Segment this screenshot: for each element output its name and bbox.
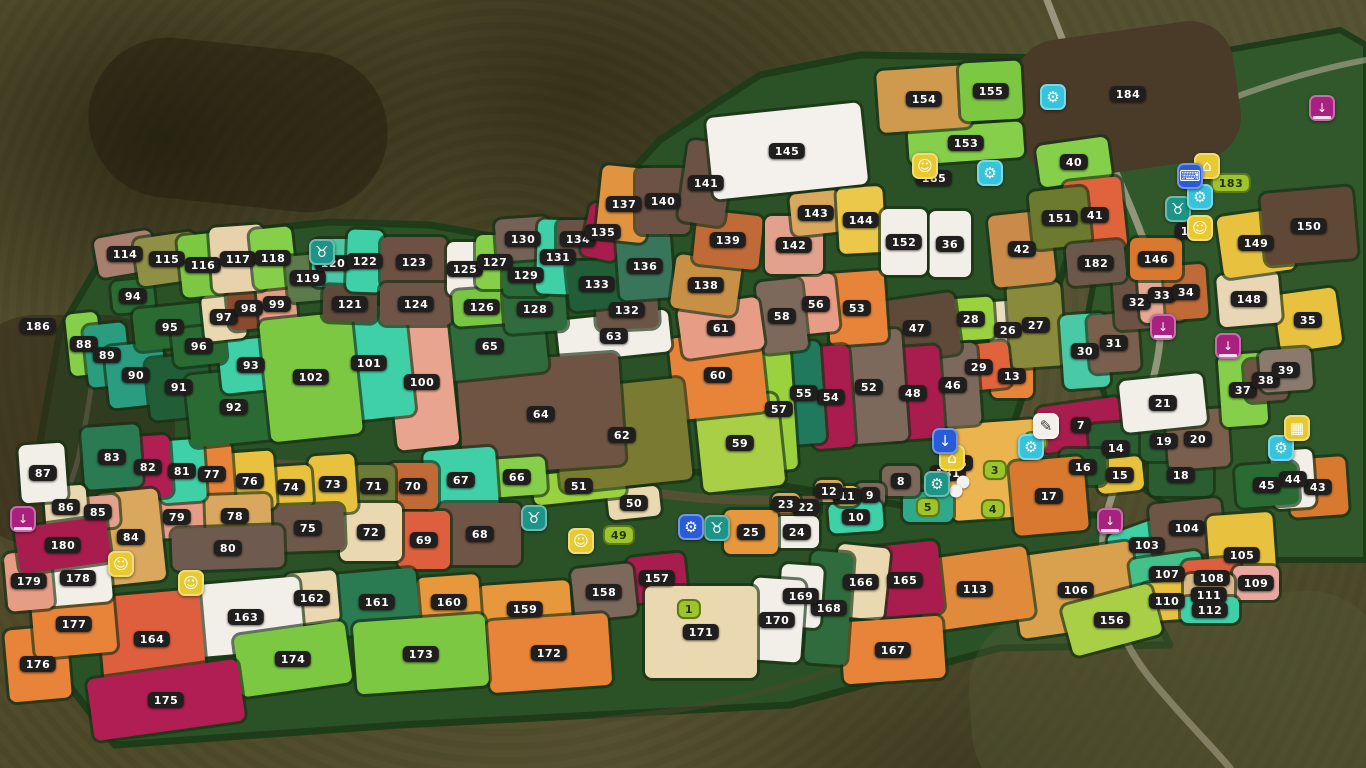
field-label-13[interactable]: 13: [998, 368, 1026, 384]
field-label-25[interactable]: 25: [737, 524, 765, 540]
field-label-24[interactable]: 24: [783, 524, 811, 540]
field-label-42[interactable]: 42: [1008, 241, 1036, 257]
field-label-92[interactable]: 92: [220, 399, 248, 415]
field-label-58[interactable]: 58: [768, 308, 796, 324]
field-label-126[interactable]: 126: [464, 299, 500, 315]
cow-shed-icon-glyph: ♉: [1171, 200, 1184, 218]
field-label-101[interactable]: 101: [351, 355, 387, 371]
field-label-183[interactable]: 183: [1213, 175, 1249, 191]
field-label-85[interactable]: 85: [84, 504, 112, 520]
field-label-103[interactable]: 103: [1129, 537, 1165, 553]
sell-point-icon-glyph: ↓: [1317, 101, 1327, 115]
field-label-175[interactable]: 175: [148, 692, 184, 708]
field-label-36[interactable]: 36: [936, 236, 964, 252]
marker-dot[interactable]: [950, 485, 963, 498]
field-label-87[interactable]: 87: [29, 465, 57, 481]
field-label-180[interactable]: 180: [45, 537, 81, 553]
cow-shed-icon-glyph: ♉: [710, 519, 723, 537]
production-icon-glyph: ⚙: [1274, 439, 1287, 457]
production-icon-glyph: ⚙: [983, 164, 996, 182]
field-label-141[interactable]: 141: [688, 175, 724, 191]
field-label-90[interactable]: 90: [122, 367, 150, 383]
cow-shed-icon-glyph: ♉: [527, 509, 540, 527]
field-label-19[interactable]: 19: [1150, 433, 1178, 449]
field-label-184[interactable]: 184: [1110, 86, 1146, 102]
production-icon-glyph: ⚙: [1193, 188, 1206, 206]
field-label-61[interactable]: 61: [707, 320, 735, 336]
field-label-113[interactable]: 113: [957, 581, 993, 597]
field-label-150[interactable]: 150: [1291, 218, 1327, 234]
field-label-15[interactable]: 15: [1106, 467, 1134, 483]
sell-point-icon-glyph: ↓: [1223, 339, 1233, 353]
field-label-44[interactable]: 44: [1279, 471, 1307, 487]
field-label-3[interactable]: 3: [985, 462, 1005, 478]
field-label-71[interactable]: 71: [360, 478, 388, 494]
field-label-82[interactable]: 82: [134, 459, 162, 475]
field-label-65[interactable]: 65: [476, 338, 504, 354]
field-label-161[interactable]: 161: [359, 594, 395, 610]
sales-terminal-icon-glyph: ⌨: [1179, 167, 1201, 185]
field-label-114[interactable]: 114: [107, 246, 143, 262]
field-label-115[interactable]: 115: [149, 251, 185, 267]
field-label-54[interactable]: 54: [817, 389, 845, 405]
field-label-50[interactable]: 50: [620, 495, 648, 511]
field-label-108[interactable]: 108: [1194, 570, 1230, 586]
field-label-62[interactable]: 62: [608, 427, 636, 443]
field-label-142[interactable]: 142: [776, 237, 812, 253]
field-label-76[interactable]: 76: [236, 473, 264, 489]
field-label-149[interactable]: 149: [1238, 235, 1274, 251]
field-label-49[interactable]: 49: [605, 527, 633, 543]
field-label-182[interactable]: 182: [1078, 255, 1114, 271]
sell-point-icon[interactable]: ↓: [1150, 314, 1176, 340]
sell-point-icon-glyph: ↓: [18, 512, 28, 526]
field-label-31[interactable]: 31: [1100, 335, 1128, 351]
field-map: 1234567891011121314151617181920212223242…: [0, 0, 1366, 768]
field-label-160[interactable]: 160: [431, 594, 467, 610]
field-label-176[interactable]: 176: [20, 656, 56, 672]
field-label-12[interactable]: 12: [815, 483, 843, 499]
field-label-152[interactable]: 152: [886, 234, 922, 250]
icon-caption-bar: [1219, 354, 1237, 357]
field-label-18[interactable]: 18: [1167, 467, 1195, 483]
worker-icon[interactable]: ☺: [568, 528, 594, 554]
field-label-123[interactable]: 123: [396, 254, 432, 270]
sell-point-icon[interactable]: ↓: [1097, 508, 1123, 534]
field-label-77[interactable]: 77: [198, 466, 226, 482]
field-label-20[interactable]: 20: [1184, 431, 1212, 447]
field-label-98[interactable]: 98: [235, 300, 263, 316]
field-label-102[interactable]: 102: [293, 369, 329, 385]
icon-caption-bar: [14, 527, 32, 530]
delivery-point-icon[interactable]: ↓: [932, 428, 958, 454]
field-label-5[interactable]: 5: [918, 499, 938, 515]
worker-icon-glyph: ☺: [113, 555, 129, 573]
sales-terminal-icon[interactable]: ⌨: [1177, 163, 1203, 189]
production-icon-glyph: ⚙: [1024, 438, 1037, 456]
field-label-136[interactable]: 136: [627, 258, 663, 274]
field-label-79[interactable]: 79: [163, 509, 191, 525]
field-label-86[interactable]: 86: [52, 499, 80, 515]
field-label-100[interactable]: 100: [404, 374, 440, 390]
field-label-93[interactable]: 93: [237, 357, 265, 373]
field-label-133[interactable]: 133: [579, 276, 615, 292]
field-label-56[interactable]: 56: [802, 296, 830, 312]
sell-point-icon[interactable]: ↓: [10, 506, 36, 532]
field-label-51[interactable]: 51: [565, 478, 593, 494]
field-label-121[interactable]: 121: [332, 296, 368, 312]
field-label-41[interactable]: 41: [1081, 207, 1109, 223]
field-label-127[interactable]: 127: [477, 254, 513, 270]
sell-point-icon[interactable]: ↓: [1215, 333, 1241, 359]
shop-icon[interactable]: ▦: [1284, 415, 1310, 441]
vehicle-shed-icon-glyph: ⌂: [1202, 157, 1212, 175]
field-label-72[interactable]: 72: [357, 524, 385, 540]
field-label-163[interactable]: 163: [228, 609, 264, 625]
field-label-83[interactable]: 83: [98, 449, 126, 465]
worker-icon-glyph: ☺: [917, 157, 933, 175]
field-label-177[interactable]: 177: [56, 616, 92, 632]
field-label-59[interactable]: 59: [726, 435, 754, 451]
field-label-111[interactable]: 111: [1191, 587, 1227, 603]
field-label-156[interactable]: 156: [1094, 612, 1130, 628]
field-label-119[interactable]: 119: [290, 270, 326, 286]
field-label-91[interactable]: 91: [165, 379, 193, 395]
field-label-132[interactable]: 132: [609, 302, 645, 318]
field-label-153[interactable]: 153: [948, 135, 984, 151]
field-label-75[interactable]: 75: [294, 520, 322, 536]
cow-shed-icon-glyph: ♉: [315, 243, 328, 261]
field-label-46[interactable]: 46: [939, 377, 967, 393]
field-label-173[interactable]: 173: [403, 646, 439, 662]
field-label-68[interactable]: 68: [466, 526, 494, 542]
field-label-4[interactable]: 4: [983, 501, 1003, 517]
field-label-10[interactable]: 10: [842, 509, 870, 525]
worker-icon[interactable]: ☺: [912, 153, 938, 179]
document-icon[interactable]: ✎: [1033, 413, 1059, 439]
field-label-70[interactable]: 70: [399, 478, 427, 494]
delivery-point-icon-glyph: ↓: [939, 432, 952, 450]
production-icon-glyph: ⚙: [1046, 88, 1059, 106]
field-label-80[interactable]: 80: [214, 540, 242, 556]
field-label-7[interactable]: 7: [1071, 417, 1091, 433]
field-label-138[interactable]: 138: [688, 277, 724, 293]
worker-icon[interactable]: ☺: [178, 570, 204, 596]
field-label-78[interactable]: 78: [221, 508, 249, 524]
field-label-45[interactable]: 45: [1253, 477, 1281, 493]
field-label-43[interactable]: 43: [1304, 479, 1332, 495]
field-label-174[interactable]: 174: [275, 651, 311, 667]
field-label-21[interactable]: 21: [1149, 395, 1177, 411]
field-label-8[interactable]: 8: [891, 473, 911, 489]
field-label-158[interactable]: 158: [586, 584, 622, 600]
field-label-137[interactable]: 137: [606, 196, 642, 212]
field-label-81[interactable]: 81: [168, 463, 196, 479]
cow-shed-icon[interactable]: ♉: [521, 505, 547, 531]
worker-icon-glyph: ☺: [573, 532, 589, 550]
field-label-143[interactable]: 143: [798, 205, 834, 221]
field-label-162[interactable]: 162: [294, 590, 330, 606]
field-label-73[interactable]: 73: [319, 476, 347, 492]
field-label-23[interactable]: 23: [772, 496, 800, 512]
field-label-155[interactable]: 155: [973, 83, 1009, 99]
field-label-167[interactable]: 167: [875, 642, 911, 658]
production-icon-glyph: ⚙: [930, 475, 943, 493]
field-label-179[interactable]: 179: [11, 573, 47, 589]
field-label-94[interactable]: 94: [119, 288, 147, 304]
field-label-117[interactable]: 117: [220, 251, 256, 267]
field-label-172[interactable]: 172: [531, 645, 567, 661]
field-label-63[interactable]: 63: [600, 328, 628, 344]
production-icon[interactable]: ⚙: [1040, 84, 1066, 110]
field-label-40[interactable]: 40: [1060, 154, 1088, 170]
field-label-151[interactable]: 151: [1042, 210, 1078, 226]
field-label-55[interactable]: 55: [790, 385, 818, 401]
cow-shed-icon[interactable]: ♉: [704, 515, 730, 541]
field-label-67[interactable]: 67: [447, 472, 475, 488]
field-label-140[interactable]: 140: [645, 193, 681, 209]
field-label-35[interactable]: 35: [1294, 312, 1322, 328]
field-label-69[interactable]: 69: [410, 532, 438, 548]
field-label-135[interactable]: 135: [585, 224, 621, 240]
field-label-34[interactable]: 34: [1172, 284, 1200, 300]
field-label-64[interactable]: 64: [527, 406, 555, 422]
field-label-96[interactable]: 96: [185, 338, 213, 354]
field-label-171[interactable]: 171: [683, 624, 719, 640]
field-label-166[interactable]: 166: [843, 574, 879, 590]
icon-caption-bar: [1154, 335, 1172, 338]
fuel-station-icon-glyph: ⚙: [684, 518, 697, 536]
field-label-130[interactable]: 130: [505, 231, 541, 247]
field-label-1[interactable]: 1: [679, 601, 699, 617]
field-label-148[interactable]: 148: [1231, 291, 1267, 307]
sell-point-icon[interactable]: ↓: [1309, 95, 1335, 121]
field-label-128[interactable]: 128: [517, 301, 553, 317]
field-label-144[interactable]: 144: [843, 212, 879, 228]
document-icon-glyph: ✎: [1040, 417, 1053, 435]
field-label-9[interactable]: 9: [860, 487, 880, 503]
field-label-74[interactable]: 74: [277, 479, 305, 495]
shop-icon-glyph: ▦: [1290, 419, 1304, 437]
fuel-station-icon[interactable]: ⚙: [678, 514, 704, 540]
worker-icon[interactable]: ☺: [1187, 215, 1213, 241]
field-label-99[interactable]: 99: [263, 296, 291, 312]
field-label-124[interactable]: 124: [398, 296, 434, 312]
field-label-57[interactable]: 57: [765, 401, 793, 417]
field-label-170[interactable]: 170: [759, 612, 795, 628]
field-label-129[interactable]: 129: [508, 267, 544, 283]
field-label-26[interactable]: 26: [994, 322, 1022, 338]
field-label-139[interactable]: 139: [710, 232, 746, 248]
production-icon[interactable]: ⚙: [977, 160, 1003, 186]
sell-point-icon-glyph: ↓: [1158, 320, 1168, 334]
field-label-112[interactable]: 112: [1192, 602, 1228, 618]
production-icon[interactable]: ⚙: [924, 471, 950, 497]
icon-caption-bar: [1313, 116, 1331, 119]
field-label-30[interactable]: 30: [1071, 343, 1099, 359]
field-label-122[interactable]: 122: [347, 253, 383, 269]
field-label-27[interactable]: 27: [1022, 317, 1050, 333]
field-label-106[interactable]: 106: [1058, 582, 1094, 598]
worker-icon[interactable]: ☺: [108, 551, 134, 577]
field-label-145[interactable]: 145: [769, 143, 805, 159]
worker-icon-glyph: ☺: [183, 574, 199, 592]
field-label-84[interactable]: 84: [117, 529, 145, 545]
field-label-48[interactable]: 48: [899, 385, 927, 401]
field-label-154[interactable]: 154: [906, 91, 942, 107]
field-label-16[interactable]: 16: [1069, 459, 1097, 475]
field-label-104[interactable]: 104: [1169, 520, 1205, 536]
field-label-110[interactable]: 110: [1149, 593, 1185, 609]
field-label-66[interactable]: 66: [503, 469, 531, 485]
field-label-47[interactable]: 47: [903, 320, 931, 336]
field-label-60[interactable]: 60: [704, 367, 732, 383]
field-label-109[interactable]: 109: [1238, 575, 1274, 591]
field-label-159[interactable]: 159: [507, 601, 543, 617]
field-label-116[interactable]: 116: [185, 257, 221, 273]
field-label-14[interactable]: 14: [1102, 440, 1130, 456]
field-label-118[interactable]: 118: [255, 250, 291, 266]
worker-icon-glyph: ☺: [1192, 219, 1208, 237]
sell-point-icon-glyph: ↓: [1105, 514, 1115, 528]
field-label-28[interactable]: 28: [957, 311, 985, 327]
field-label-157[interactable]: 157: [639, 570, 675, 586]
field-label-169[interactable]: 169: [783, 588, 819, 604]
field-label-164[interactable]: 164: [134, 631, 170, 647]
field-label-29[interactable]: 29: [965, 359, 993, 375]
field-label-178[interactable]: 178: [60, 570, 96, 586]
field-label-107[interactable]: 107: [1149, 566, 1185, 582]
field-label-89[interactable]: 89: [93, 347, 121, 363]
field-label-165[interactable]: 165: [887, 572, 923, 588]
field-label-39[interactable]: 39: [1272, 362, 1300, 378]
field-label-52[interactable]: 52: [855, 379, 883, 395]
field-label-186[interactable]: 186: [20, 318, 56, 334]
field-label-105[interactable]: 105: [1224, 547, 1260, 563]
field-label-53[interactable]: 53: [843, 300, 871, 316]
icon-caption-bar: [1101, 529, 1119, 532]
field-label-131[interactable]: 131: [540, 249, 576, 265]
field-label-146[interactable]: 146: [1138, 251, 1174, 267]
cow-shed-icon[interactable]: ♉: [309, 239, 335, 265]
field-label-95[interactable]: 95: [156, 319, 184, 335]
field-label-17[interactable]: 17: [1035, 488, 1063, 504]
